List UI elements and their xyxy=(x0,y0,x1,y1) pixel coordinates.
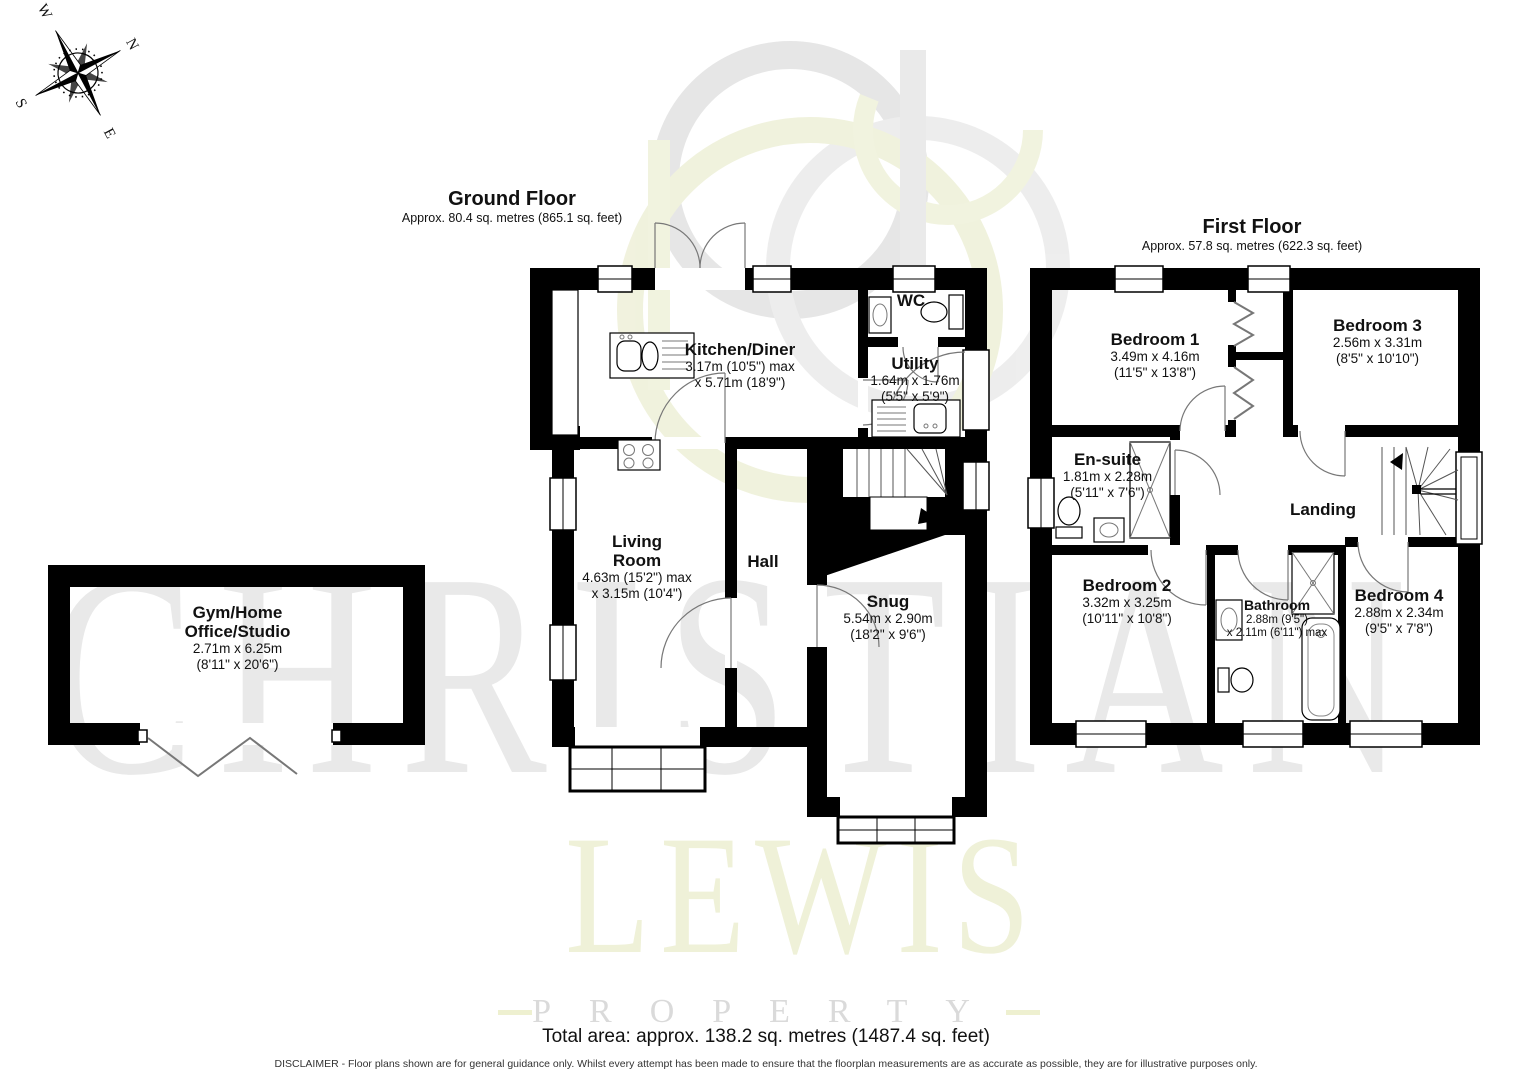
bathroom-name: Bathroom xyxy=(1215,598,1339,614)
living-room-name1: Living xyxy=(567,532,707,551)
ensuite-label: En-suite 1.81m x 2.28m (5'11" x 7'6") xyxy=(1040,450,1175,500)
bedroom1-name: Bedroom 1 xyxy=(1075,330,1235,349)
gym-dim2: (8'11" x 20'6") xyxy=(150,657,325,673)
bedroom4-name: Bedroom 4 xyxy=(1328,586,1470,605)
first-floor-title: First Floor Approx. 57.8 sq. metres (622… xyxy=(1107,216,1397,253)
snug-name: Snug xyxy=(818,592,958,611)
gym-name1: Gym/Home xyxy=(150,603,325,622)
compass-n-label: N xyxy=(122,36,141,53)
kitchen-dim1: 3.17m (10'5") max xyxy=(640,359,840,375)
utility-name: Utility xyxy=(852,354,978,373)
floorplan-page: CHRISTIAN LEWIS PROPERTY N E S W xyxy=(0,0,1532,1080)
bedroom1-dim2: (11'5" x 13'8") xyxy=(1075,365,1235,381)
utility-sink-washer xyxy=(872,400,960,437)
bedroom3-label: Bedroom 3 2.56m x 3.31m (8'5" x 10'10") xyxy=(1300,316,1455,366)
bedroom3-dim2: (8'5" x 10'10") xyxy=(1300,351,1455,367)
bathroom-dim2: x 2.11m (6'11") max xyxy=(1215,627,1339,640)
utility-dim1: 1.64m x 1.76m xyxy=(852,373,978,389)
compass-e-label: E xyxy=(100,126,118,142)
bedroom4-dim2: (9'5" x 7'8") xyxy=(1328,621,1470,637)
landing-cupboard-bifold-doors xyxy=(1234,302,1253,419)
ensuite-dim2: (5'11" x 7'6") xyxy=(1040,485,1175,501)
wc-name: WC xyxy=(888,291,934,310)
wc-label: WC xyxy=(888,291,934,310)
ground-floor-title: Ground Floor Approx. 80.4 sq. metres (86… xyxy=(377,188,647,225)
gym-dim1: 2.71m x 6.25m xyxy=(150,641,325,657)
bedroom1-dim1: 3.49m x 4.16m xyxy=(1075,349,1235,365)
bedroom3-dim1: 2.56m x 3.31m xyxy=(1300,335,1455,351)
total-area-text: Total area: approx. 138.2 sq. metres (14… xyxy=(0,1026,1532,1048)
living-room-dim1: 4.63m (15'2") max xyxy=(567,570,707,586)
bedroom2-dim1: 3.32m x 3.25m xyxy=(1047,595,1207,611)
living-room-dim2: x 3.15m (10'4") xyxy=(567,586,707,602)
living-room-name2: Room xyxy=(567,551,707,570)
bedroom4-dim1: 2.88m x 2.34m xyxy=(1328,605,1470,621)
kitchen-name: Kitchen/Diner xyxy=(640,340,840,359)
utility-label: Utility 1.64m x 1.76m (5'5" x 5'9") xyxy=(852,354,978,404)
bedroom2-label: Bedroom 2 3.32m x 3.25m (10'11" x 10'8") xyxy=(1047,576,1207,626)
bedroom4-label: Bedroom 4 2.88m x 2.34m (9'5" x 7'8") xyxy=(1328,586,1470,636)
landing-label: Landing xyxy=(1283,500,1363,519)
kitchen-dim2: x 5.71m (18'9") xyxy=(640,375,840,391)
ground-floor-title-text: Ground Floor xyxy=(377,188,647,211)
bedroom2-dim2: (10'11" x 10'8") xyxy=(1047,611,1207,627)
first-floor-stairs xyxy=(1382,447,1458,535)
kitchen-label: Kitchen/Diner 3.17m (10'5") max x 5.71m … xyxy=(640,340,840,390)
landing-name: Landing xyxy=(1283,500,1363,519)
hall-name: Hall xyxy=(727,552,799,571)
ensuite-name: En-suite xyxy=(1040,450,1175,469)
bedroom1-label: Bedroom 1 3.49m x 4.16m (11'5" x 13'8") xyxy=(1075,330,1235,380)
compass-s-label: S xyxy=(12,96,30,111)
compass-w-label: W xyxy=(34,2,55,23)
snug-dim2: (18'2" x 9'6") xyxy=(818,627,958,643)
bathroom-label: Bathroom 2.88m (9'5") x 2.11m (6'11") ma… xyxy=(1215,598,1339,640)
disclaimer-text: DISCLAIMER - Floor plans shown are for g… xyxy=(0,1058,1532,1070)
ground-floor-area-text: Approx. 80.4 sq. metres (865.1 sq. feet) xyxy=(377,211,647,225)
ensuite-dim1: 1.81m x 2.28m xyxy=(1040,469,1175,485)
kitchen-hob xyxy=(618,440,660,470)
snug-bay-window xyxy=(838,817,954,843)
snug-dim1: 5.54m x 2.90m xyxy=(818,611,958,627)
watermark-emblem-icon xyxy=(630,45,1058,490)
first-floor-doors xyxy=(1151,386,1408,605)
gym-label: Gym/Home Office/Studio 2.71m x 6.25m (8'… xyxy=(150,603,325,672)
bathroom-dim1: 2.88m (9'5") xyxy=(1215,614,1339,627)
living-room-label: Living Room 4.63m (15'2") max x 3.15m (1… xyxy=(567,532,707,601)
first-floor-area-text: Approx. 57.8 sq. metres (622.3 sq. feet) xyxy=(1107,239,1397,253)
floorplan-drawing: N E S W xyxy=(0,0,1532,1080)
living-room-bay-window xyxy=(570,747,705,791)
gym-name2: Office/Studio xyxy=(150,622,325,641)
bedroom3-name: Bedroom 3 xyxy=(1300,316,1455,335)
snug-label: Snug 5.54m x 2.90m (18'2" x 9'6") xyxy=(818,592,958,642)
first-floor-title-text: First Floor xyxy=(1107,216,1397,239)
compass-rose-icon: N E S W xyxy=(0,0,173,171)
bedroom2-name: Bedroom 2 xyxy=(1047,576,1207,595)
utility-dim2: (5'5" x 5'9") xyxy=(852,389,978,405)
hall-label: Hall xyxy=(727,552,799,571)
